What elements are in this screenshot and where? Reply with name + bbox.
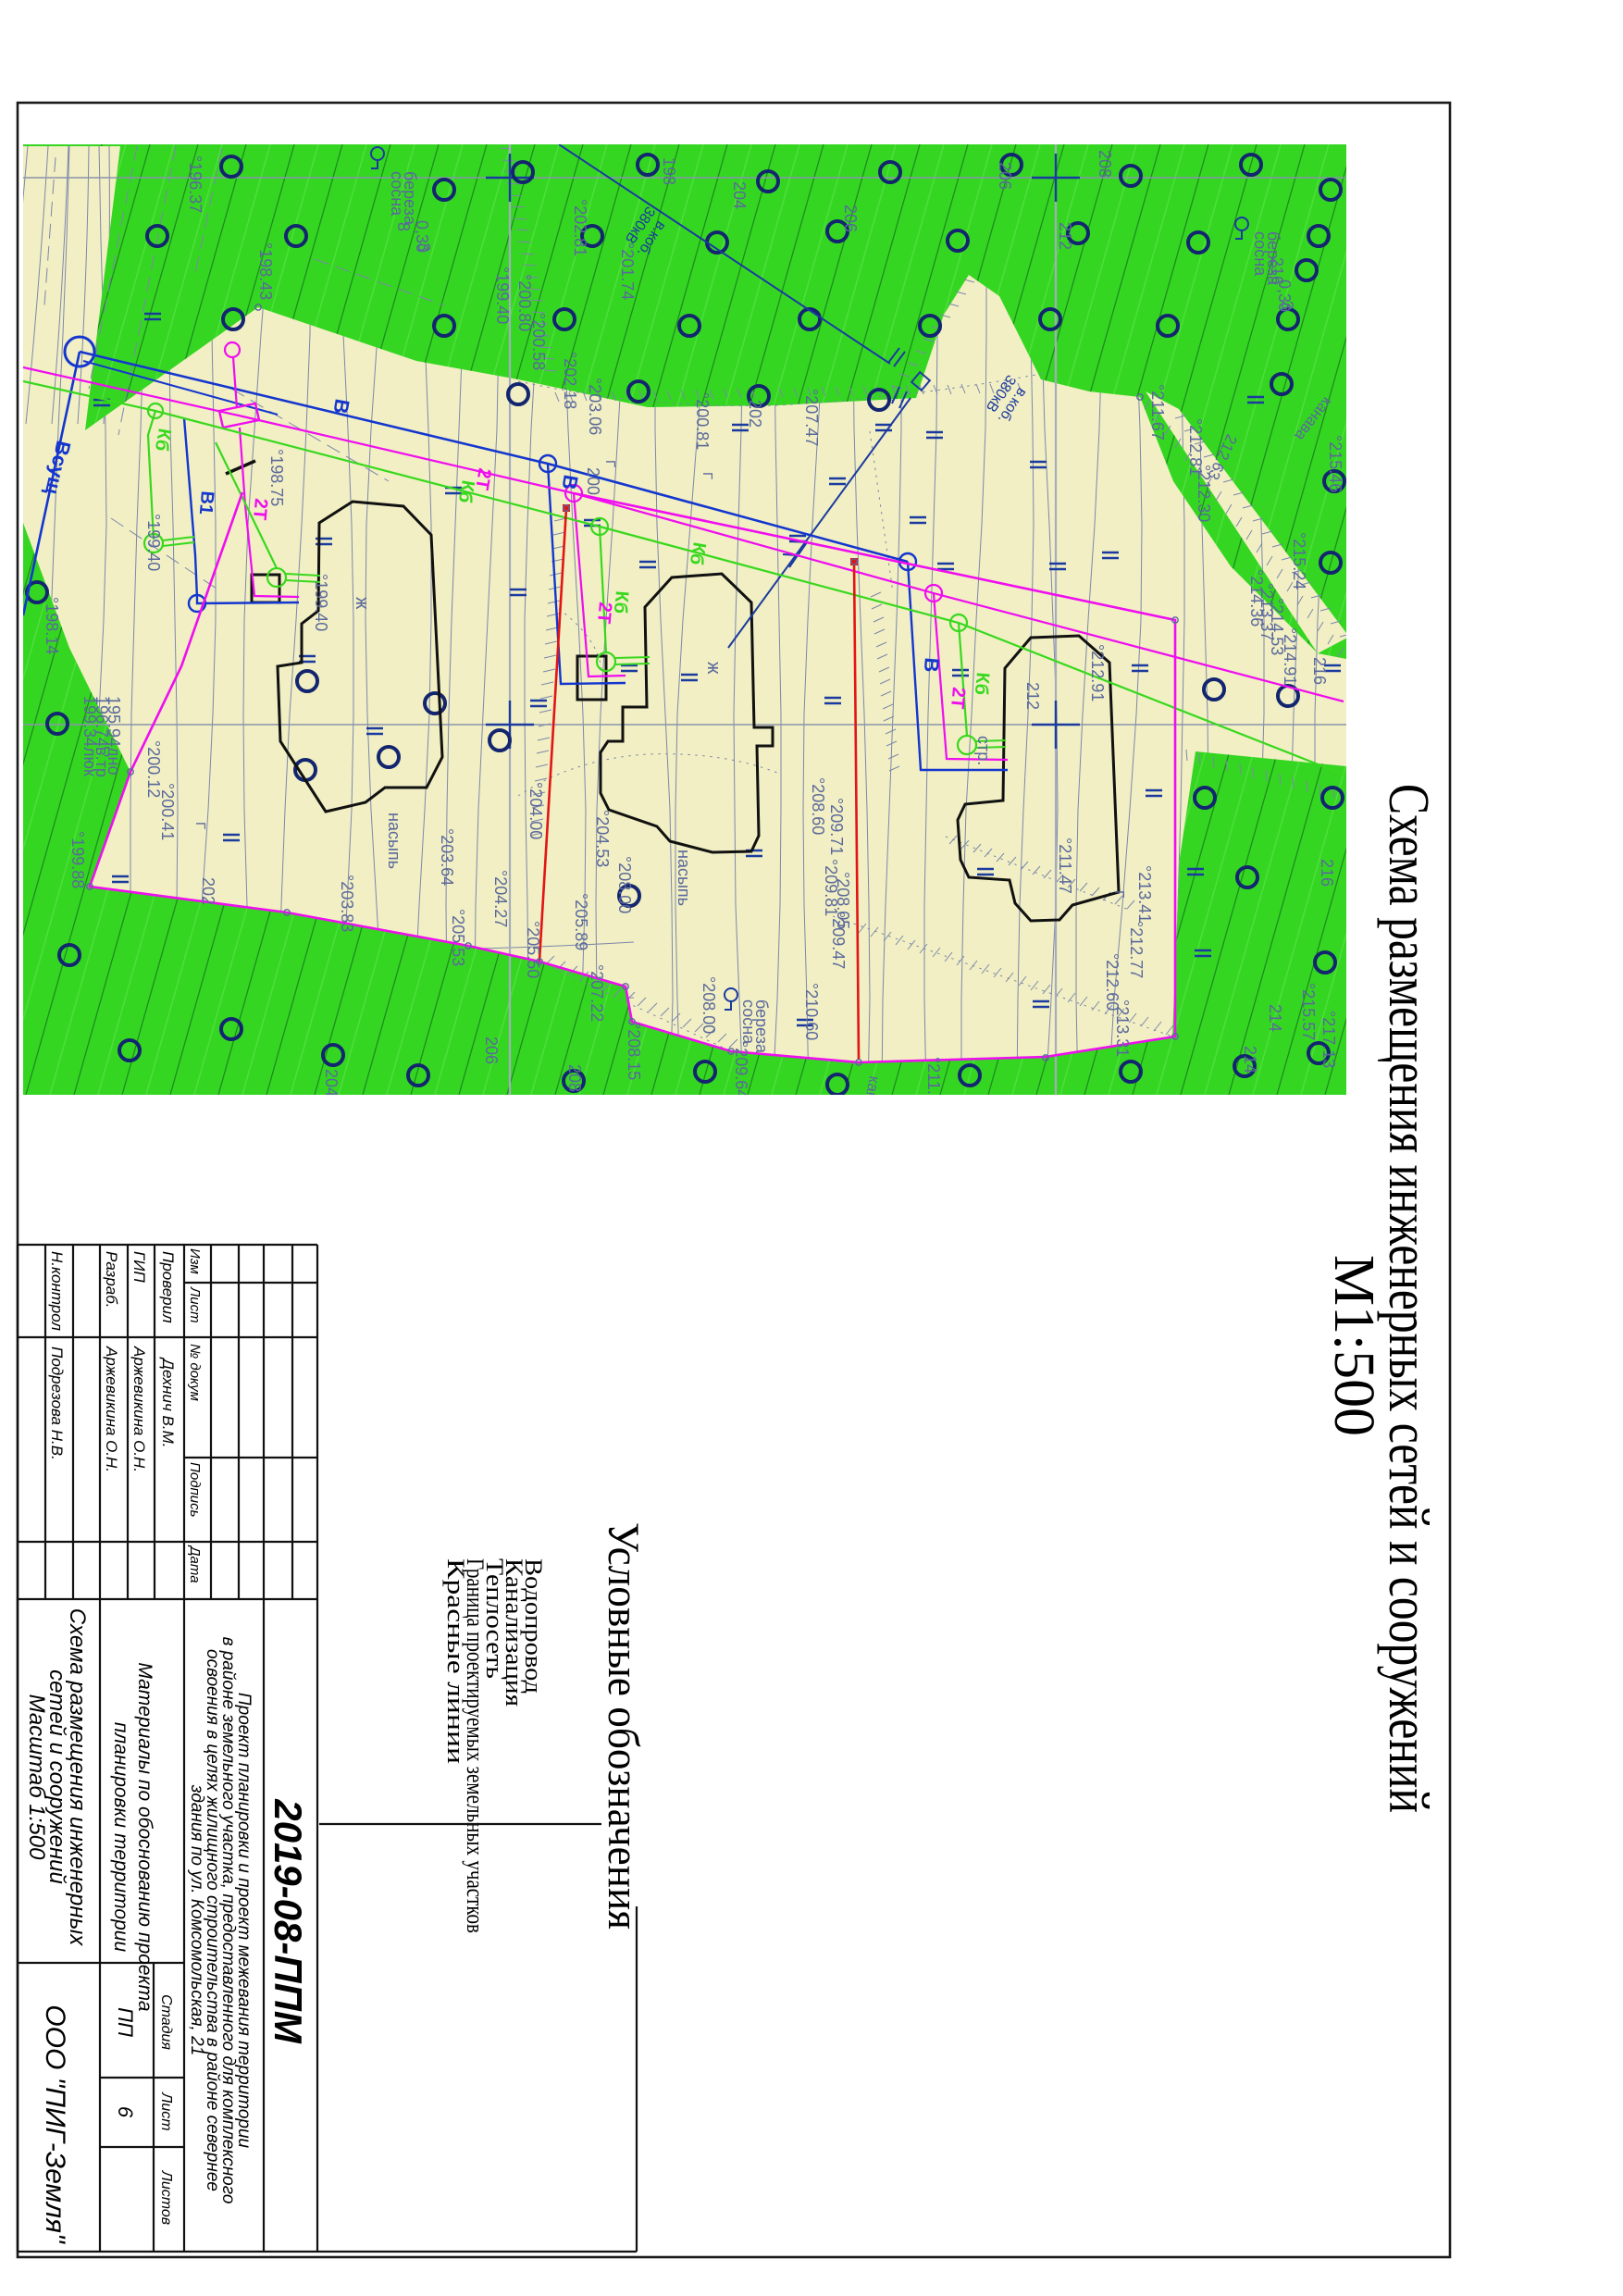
svg-text:°203.64: °203.64 xyxy=(438,828,456,886)
svg-text:береза: береза xyxy=(1264,231,1282,286)
svg-text:°212.91: °212.91 xyxy=(1088,644,1107,701)
svg-text:Аржевикина О.Н.: Аржевикина О.Н. xyxy=(130,1346,148,1472)
svg-text:В1: В1 xyxy=(195,490,217,515)
svg-text:°205.50: °205.50 xyxy=(524,921,542,978)
svg-text:Г: Г xyxy=(192,822,208,829)
svg-text:°199.40: °199.40 xyxy=(312,574,330,631)
svg-text:здания по ул. Комсомольская, 2: здания по ул. Комсомольская, 21 xyxy=(187,1784,206,2055)
svg-text:Материалы по обоснованию проек: Материалы по обоснованию проекта xyxy=(134,1662,155,2011)
svg-text:6: 6 xyxy=(114,2106,137,2118)
svg-text:206: 206 xyxy=(841,205,860,232)
svg-text:212: 212 xyxy=(1023,682,1042,710)
svg-text:204: 204 xyxy=(322,1069,341,1097)
svg-text:208: 208 xyxy=(1096,150,1114,178)
svg-text:°209.64: °209.64 xyxy=(732,1041,750,1098)
svg-text:°211.47: °211.47 xyxy=(1056,838,1074,894)
svg-text:°208.60: °208.60 xyxy=(809,777,827,835)
svg-text:2019-08-ППМ: 2019-08-ППМ xyxy=(266,1798,310,2044)
svg-text:Кб: Кб xyxy=(454,478,478,504)
svg-text:Кб: Кб xyxy=(610,590,632,614)
svg-text:°209.81: °209.81 xyxy=(822,859,840,916)
svg-text:°205.89: °205.89 xyxy=(572,893,590,950)
svg-text:Листов: Листов xyxy=(158,2170,174,2225)
svg-text:°199.40: °199.40 xyxy=(144,514,163,571)
svg-text:204: 204 xyxy=(730,181,749,209)
svg-text:Кб: Кб xyxy=(971,672,993,696)
svg-text:°201.74: °201.74 xyxy=(618,242,637,300)
svg-text:°200.41: °200.41 xyxy=(158,783,177,840)
svg-text:°198.43: °198.43 xyxy=(256,242,275,300)
svg-text:°207.22: °207.22 xyxy=(588,964,606,1022)
svg-text:°214.53: °214.53 xyxy=(1268,598,1286,655)
svg-text:2Т: 2Т xyxy=(947,687,969,710)
svg-text:206: 206 xyxy=(482,1036,501,1064)
svg-text:°212.77: °212.77 xyxy=(1127,921,1146,978)
svg-text:214: 214 xyxy=(1266,1004,1284,1032)
svg-text:береза: береза xyxy=(752,999,771,1054)
svg-text:°211.67: °211.67 xyxy=(1148,384,1167,441)
svg-text:°209.47: °209.47 xyxy=(829,912,848,969)
svg-text:№ докум: № докум xyxy=(187,1344,203,1401)
svg-text:Лист: Лист xyxy=(187,1286,203,1323)
svg-text:°213.31: °213.31 xyxy=(1113,999,1132,1057)
svg-text:208: 208 xyxy=(565,1064,584,1092)
svg-text:Разраб.: Разраб. xyxy=(103,1251,120,1309)
svg-text:°215.24: °215.24 xyxy=(1290,532,1308,590)
svg-text:°196.37: °196.37 xyxy=(186,155,204,213)
svg-text:°199.40: °199.40 xyxy=(493,267,512,324)
svg-text:°215.46: °215.46 xyxy=(1326,435,1344,492)
svg-text:°204.27: °204.27 xyxy=(491,870,510,927)
svg-text:202: 202 xyxy=(199,877,217,905)
svg-text:ж: ж xyxy=(703,662,724,675)
svg-text:Изм: Изм xyxy=(187,1248,203,1274)
svg-text:ПП: ПП xyxy=(114,2007,137,2037)
svg-text:°205.53: °205.53 xyxy=(449,909,467,966)
svg-text:°210.60: °210.60 xyxy=(802,983,821,1040)
svg-text:212: 212 xyxy=(1056,222,1074,250)
svg-text:планировки территории: планировки территории xyxy=(110,1722,131,1953)
svg-text:216: 216 xyxy=(1318,859,1336,887)
svg-text:°202.18: °202.18 xyxy=(561,352,579,409)
svg-text:Масштаб 1:500: Масштаб 1:500 xyxy=(24,1694,49,1860)
svg-text:°208.00: °208.00 xyxy=(615,856,634,913)
svg-text:198: 198 xyxy=(660,157,678,185)
svg-text:Н.контрол: Н.контрол xyxy=(48,1251,66,1331)
svg-text:°199.88: °199.88 xyxy=(68,831,87,888)
svg-text:206: 206 xyxy=(996,162,1014,190)
svg-text:°203.06: °203.06 xyxy=(586,378,604,435)
svg-text:°204.53: °204.53 xyxy=(593,810,612,867)
svg-text:береза: береза xyxy=(401,171,419,226)
svg-text:ГИП: ГИП xyxy=(130,1251,148,1283)
svg-text:200: 200 xyxy=(584,467,602,495)
svg-text:°198.14: °198.14 xyxy=(43,597,61,654)
svg-text:Г: Г xyxy=(700,472,715,479)
svg-text:°200.81: °200.81 xyxy=(693,392,712,450)
svg-text:Дата: Дата xyxy=(187,1545,203,1583)
svg-text:ж: ж xyxy=(352,597,372,610)
svg-text:М1:500: М1:500 xyxy=(1322,1255,1385,1436)
svg-text:195.94дно: 195.94дно xyxy=(105,696,123,776)
svg-text:Дехнич В.М.: Дехнич В.М. xyxy=(159,1357,177,1447)
svg-text:°204.00: °204.00 xyxy=(527,782,545,839)
svg-text:Подрезова Н.В.: Подрезова Н.В. xyxy=(48,1347,66,1460)
svg-text:В: В xyxy=(920,657,944,674)
svg-text:3: 3 xyxy=(415,242,433,252)
svg-text:°209.71: °209.71 xyxy=(827,798,846,855)
svg-text:Г: Г xyxy=(1111,890,1127,898)
svg-text:стр.: стр. xyxy=(974,736,993,765)
svg-text:202: 202 xyxy=(746,400,764,428)
svg-text:насыпь: насыпь xyxy=(385,813,403,869)
svg-text:Кб: Кб xyxy=(151,427,175,453)
svg-text:Схема размещения инженерных се: Схема размещения инженерных сетей и соор… xyxy=(1377,784,1440,1813)
svg-text:насыпь: насыпь xyxy=(675,850,693,906)
svg-text:°203.83: °203.83 xyxy=(338,875,356,932)
svg-text:°200.58: °200.58 xyxy=(529,313,548,370)
svg-text:Красные линии: Красные линии xyxy=(442,1558,469,1764)
svg-text:°215.57: °215.57 xyxy=(1299,983,1318,1040)
svg-text:°198.75: °198.75 xyxy=(267,449,286,506)
svg-text:Проверил: Проверил xyxy=(159,1251,177,1323)
svg-text:Стадия: Стадия xyxy=(158,1994,174,2050)
svg-text:ООО "ПИГ-Земля": ООО "ПИГ-Земля" xyxy=(40,2004,70,2244)
svg-text:°208.15: °208.15 xyxy=(625,1023,643,1080)
svg-text:Кб: Кб xyxy=(686,540,710,566)
svg-text:Лист: Лист xyxy=(158,2091,174,2130)
svg-text:214: 214 xyxy=(1241,1046,1259,1074)
svg-text:2Т: 2Т xyxy=(249,498,271,521)
svg-text:°202.81: °202.81 xyxy=(571,199,589,256)
svg-text:Аржевикина О.Н.: Аржевикина О.Н. xyxy=(103,1346,120,1472)
svg-text:°213.41: °213.41 xyxy=(1135,865,1154,923)
svg-text:°217.13: °217.13 xyxy=(1319,1011,1338,1068)
svg-text:3: 3 xyxy=(1278,301,1296,310)
svg-text:8: 8 xyxy=(394,222,413,231)
svg-text:°207.47: °207.47 xyxy=(802,389,821,446)
svg-text:216: 216 xyxy=(1310,657,1329,685)
svg-text:°208.00: °208.00 xyxy=(700,976,718,1034)
svg-text:Подпись: Подпись xyxy=(187,1462,203,1518)
svg-text:Г: Г xyxy=(602,460,618,467)
svg-text:Условные обозначения: Условные обозначения xyxy=(599,1522,648,1930)
